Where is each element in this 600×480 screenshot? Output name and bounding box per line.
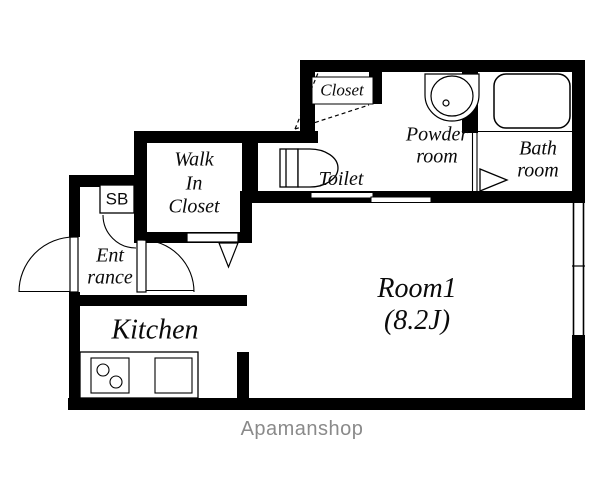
room1-label: Room1 (8.2J) bbox=[377, 273, 456, 337]
floor-plan: Closet Powder room Bath room Walk In Clo… bbox=[0, 0, 600, 480]
entrance-interior-door bbox=[137, 240, 194, 292]
stove-burner-2 bbox=[110, 376, 122, 388]
wall-right-upper bbox=[572, 60, 585, 203]
kitchen-label: Kitchen bbox=[111, 314, 198, 345]
stove-icon bbox=[91, 358, 129, 393]
wall-kitchen-room-stub bbox=[237, 352, 249, 398]
powder-room-label-line2: room bbox=[416, 146, 457, 168]
entrance-label-line1: Ent bbox=[96, 245, 124, 267]
window-right bbox=[572, 203, 585, 335]
wic-door-icon bbox=[187, 233, 238, 267]
bath-room-label: Bath room bbox=[517, 138, 558, 183]
room1-name: Room1 bbox=[377, 273, 456, 304]
wall-wic-left bbox=[134, 131, 147, 241]
entrance-label-line2: rance bbox=[87, 267, 133, 289]
closet-label: Closet bbox=[320, 80, 363, 99]
floor-plan-drawing bbox=[0, 0, 600, 480]
room1-size: (8.2J) bbox=[384, 305, 450, 336]
bath-room-label-line1: Bath bbox=[519, 138, 557, 160]
powder-room-label: Powder room bbox=[406, 124, 468, 169]
washbasin-icon bbox=[425, 74, 479, 121]
kitchen-counter bbox=[80, 352, 198, 398]
walk-in-closet-label: Walk In Closet bbox=[168, 149, 219, 220]
wall-wic-top bbox=[134, 131, 318, 143]
stove-burner-1 bbox=[97, 364, 109, 376]
kitchen-sink-icon bbox=[155, 358, 192, 393]
wall-top bbox=[300, 60, 585, 72]
wic-label-line3: Closet bbox=[168, 196, 219, 218]
wic-label-line1: Walk bbox=[174, 149, 213, 171]
toilet-label: Toilet bbox=[319, 168, 364, 190]
entrance-label: Ent rance bbox=[87, 245, 133, 290]
bathroom-door-icon bbox=[480, 169, 507, 191]
entrance-exterior-door bbox=[19, 237, 78, 292]
wic-label-line2: In bbox=[186, 172, 203, 194]
bath-room-label-line2: room bbox=[517, 160, 558, 182]
wall-kitchen-left bbox=[69, 292, 80, 402]
wall-kitchen-top bbox=[72, 295, 247, 306]
apamanshop-logo: Apamanshop bbox=[241, 418, 364, 440]
powder-room-label-line1: Powder bbox=[406, 124, 468, 146]
wall-bottom bbox=[68, 398, 585, 410]
shoebox-label: SB bbox=[106, 189, 129, 208]
wall-wic-right bbox=[242, 131, 258, 193]
bathtub-fixture bbox=[494, 74, 570, 128]
